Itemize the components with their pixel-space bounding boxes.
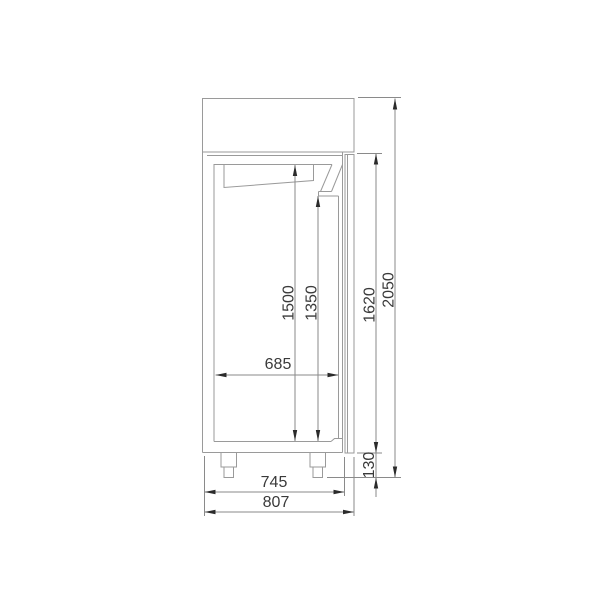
arrowhead-up <box>316 196 320 207</box>
dim-label-interior-front-height: 1350 <box>304 285 321 321</box>
arrowhead-up <box>393 99 397 110</box>
door-outline <box>345 155 354 454</box>
evaporator-housing <box>224 165 314 188</box>
dim-leg-height: 130 <box>361 452 378 489</box>
dim-label-door-height: 1620 <box>362 287 379 323</box>
arrowhead-left <box>205 510 216 514</box>
front-sill-step <box>331 439 343 442</box>
arrowhead-right <box>343 510 354 514</box>
dim-interior-depth: 685 <box>216 356 339 377</box>
arrowhead-up <box>293 165 297 176</box>
dim-label-leg-height: 130 <box>361 452 378 479</box>
arrowhead-up <box>374 154 378 165</box>
cabinet-body <box>203 99 355 453</box>
dim-interior-front-height: 1350 <box>304 196 321 441</box>
arrowhead-down <box>316 430 320 441</box>
arrowhead-right <box>334 490 345 494</box>
cabinet-side-view-technical-drawing: 2050 1620 130 1500 1350 685 <box>0 0 600 600</box>
arrowhead-down <box>374 442 378 453</box>
dim-label-interior-depth: 685 <box>265 356 292 373</box>
right-leg <box>310 453 326 478</box>
left-leg <box>221 453 237 478</box>
drawing-canvas: 2050 1620 130 1500 1350 685 <box>0 0 600 600</box>
arrowhead-down <box>393 467 397 478</box>
dim-door-height: 1620 <box>357 154 382 498</box>
arrowhead-left <box>205 490 216 494</box>
arrowhead-right <box>328 373 339 377</box>
arrowhead-left <box>216 373 227 377</box>
dim-label-interior-height: 1500 <box>281 285 298 321</box>
dim-label-total-height: 2050 <box>381 272 398 308</box>
door <box>345 155 354 454</box>
dim-label-total-depth: 807 <box>263 494 290 511</box>
air-duct-cover <box>319 165 343 197</box>
dim-label-body-depth: 745 <box>261 474 288 491</box>
top-compartment-outline <box>203 99 355 153</box>
arrowhead-down <box>293 430 297 441</box>
dim-interior-height: 1500 <box>281 165 298 441</box>
